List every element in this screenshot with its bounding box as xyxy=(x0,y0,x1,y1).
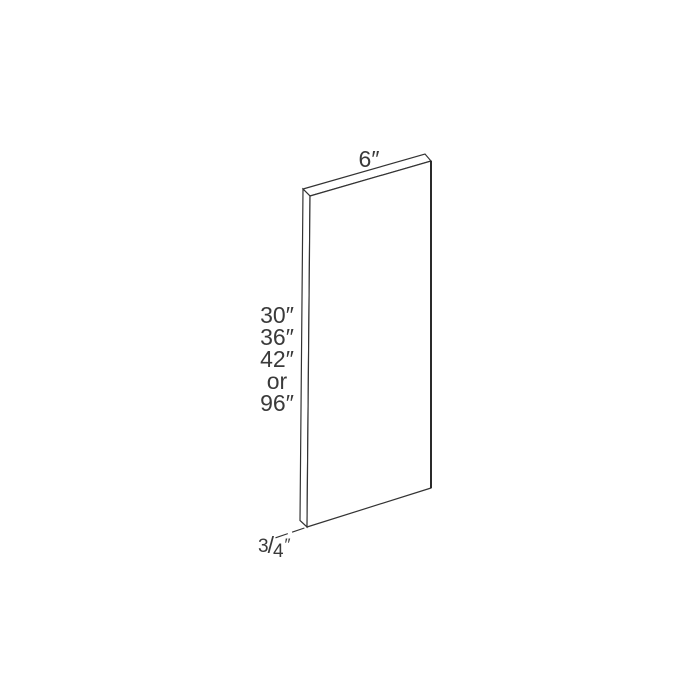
height-dimension-line: 30″ xyxy=(247,304,307,326)
panel-front-face xyxy=(307,161,431,527)
thickness-dimension-label: 3/4″ xyxy=(258,535,291,556)
height-dimension-line: 42″ xyxy=(247,348,307,370)
thickness-numerator: 3 xyxy=(258,536,269,557)
height-dimension-label: 30″ 36″ 42″ or 96″ xyxy=(247,304,307,414)
height-dimension-line: 36″ xyxy=(247,326,307,348)
height-dimension-line: 96″ xyxy=(247,392,307,414)
diagram-canvas: 6″ 30″ 36″ 42″ or 96″ 3/4″ xyxy=(0,0,700,700)
width-dimension-label: 6″ xyxy=(339,148,399,171)
thickness-denominator: 4 xyxy=(273,541,284,562)
height-dimension-or-word: or xyxy=(247,370,307,392)
thickness-inch-mark: ″ xyxy=(285,535,291,554)
panel-drawing xyxy=(0,0,700,700)
